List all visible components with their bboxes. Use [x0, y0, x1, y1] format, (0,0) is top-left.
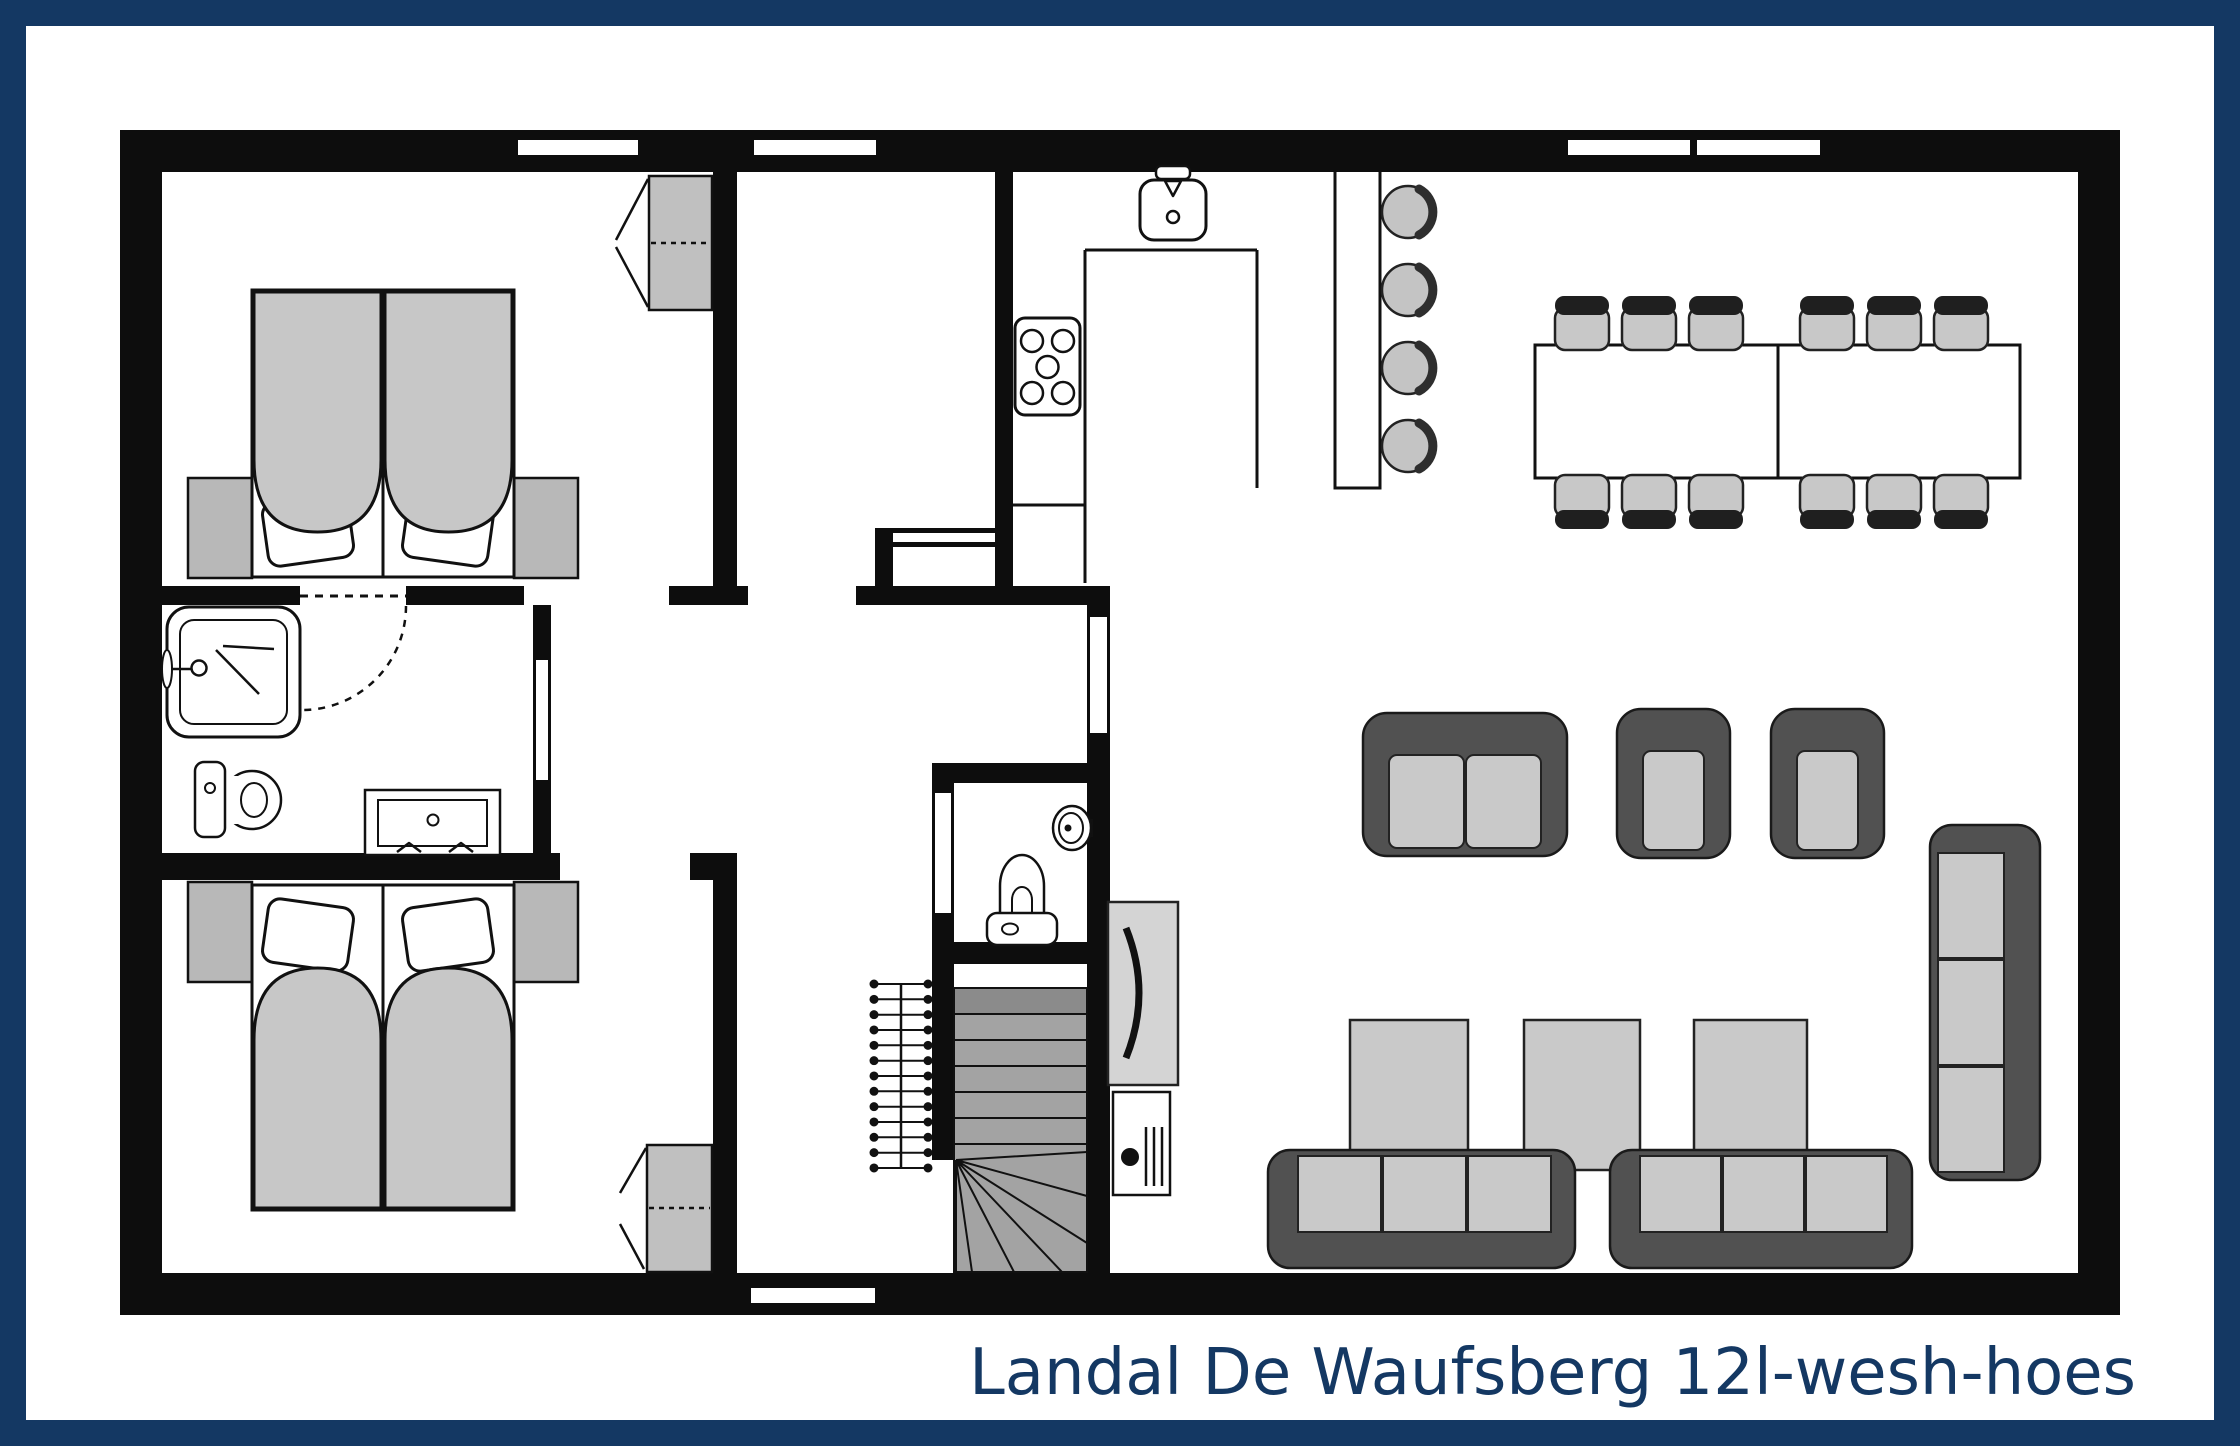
- window-bedroom1: [518, 140, 638, 155]
- floor-plan-page: Landal De Waufsberg 12l-wesh-hoes: [0, 0, 2240, 1446]
- dining-chair: [1689, 296, 1743, 350]
- wardrobe: [620, 1145, 712, 1272]
- wardrobe: [616, 176, 712, 310]
- floor-plan-drawing: [0, 0, 2240, 1446]
- side-table: [1350, 1020, 1468, 1170]
- nightstand: [514, 882, 578, 982]
- wall-room2-kitchen: [995, 172, 1013, 587]
- bathroom: [162, 607, 500, 855]
- entrance-door-opening: [751, 1288, 875, 1303]
- corridor-wall-d: [856, 586, 1110, 605]
- bar-stool: [1382, 186, 1434, 238]
- toilet: [195, 762, 281, 837]
- bedroom-2: [188, 882, 712, 1272]
- pillow: [261, 897, 355, 972]
- dining-chair: [1622, 296, 1676, 350]
- plan-title: Landal De Waufsberg 12l-wesh-hoes: [969, 1336, 2136, 1410]
- nightstand: [188, 478, 252, 578]
- faucet-icon: [1156, 166, 1190, 179]
- bar-stool: [1382, 342, 1434, 394]
- nightstand: [188, 882, 252, 982]
- double-bed: [252, 885, 514, 1210]
- duvet: [385, 968, 512, 1208]
- duvet: [385, 292, 512, 532]
- drain-icon: [1167, 211, 1179, 223]
- three-seat-sofa-wall: [1930, 825, 2040, 1180]
- living-area: [1108, 709, 2040, 1268]
- armchair: [1617, 709, 1730, 858]
- wc: [987, 806, 1092, 945]
- bathroom-bottom-wall: [162, 853, 560, 880]
- dining-chair: [1555, 296, 1609, 350]
- dining-area: [1535, 296, 2020, 529]
- corner-washbasin: [1053, 806, 1092, 850]
- living-room-door: [1090, 617, 1107, 733]
- window-dining-2: [1697, 140, 1820, 155]
- winder-staircase: [954, 988, 1087, 1272]
- dining-chair: [1934, 296, 1988, 350]
- side-table: [1694, 1020, 1807, 1170]
- niche-door-slot: [893, 533, 995, 542]
- dining-chair: [1800, 296, 1854, 350]
- duvet: [254, 968, 381, 1208]
- bathroom-door-swing: [300, 596, 406, 710]
- bar-stool: [1382, 420, 1434, 472]
- hob-5-burners: [1015, 318, 1080, 415]
- shower-head-icon: [192, 661, 207, 676]
- side-table: [1524, 1020, 1640, 1170]
- bedroom-1: [188, 176, 712, 578]
- bar-stool: [1382, 264, 1434, 316]
- nightstand: [514, 478, 578, 578]
- stair-railing: [874, 984, 928, 1168]
- bedroom2-top-wall-stub: [690, 853, 737, 880]
- window-dining-1: [1568, 140, 1690, 155]
- kitchen: [1013, 166, 1434, 583]
- dining-chair: [1622, 475, 1676, 529]
- wc-door: [935, 793, 951, 913]
- two-seat-sofa: [1363, 713, 1567, 856]
- wc-top-wall: [954, 763, 1110, 783]
- hallway: [874, 984, 1087, 1272]
- washbasin-vanity: [365, 790, 500, 855]
- three-seat-sofa: [1610, 1150, 1912, 1268]
- duvet: [254, 292, 381, 532]
- toilet: [987, 855, 1057, 945]
- wall-bedroom1-room2: [713, 172, 737, 586]
- dining-chair: [1555, 475, 1609, 529]
- shower: [162, 607, 300, 737]
- dining-chair: [1934, 475, 1988, 529]
- tv-or-fireplace-unit: [1108, 902, 1178, 1085]
- three-seat-sofa: [1268, 1150, 1575, 1268]
- dining-chair: [1867, 296, 1921, 350]
- dining-chair: [1867, 475, 1921, 529]
- bedroom2-right-wall: [713, 880, 737, 1273]
- bathroom-hall-door: [536, 660, 548, 780]
- armchair: [1771, 709, 1884, 858]
- bar-counter: [1335, 172, 1380, 488]
- double-bed: [252, 290, 514, 577]
- dining-chair: [1689, 475, 1743, 529]
- dining-chair: [1800, 475, 1854, 529]
- stove-heater: [1113, 1092, 1170, 1195]
- window-room2: [754, 140, 876, 155]
- pillow: [401, 897, 495, 972]
- kitchen-sink: [1140, 166, 1206, 240]
- corridor-wall-a: [162, 586, 300, 605]
- corridor-wall-c: [669, 586, 748, 605]
- corridor-wall-b: [406, 586, 524, 605]
- drain-icon: [428, 815, 439, 826]
